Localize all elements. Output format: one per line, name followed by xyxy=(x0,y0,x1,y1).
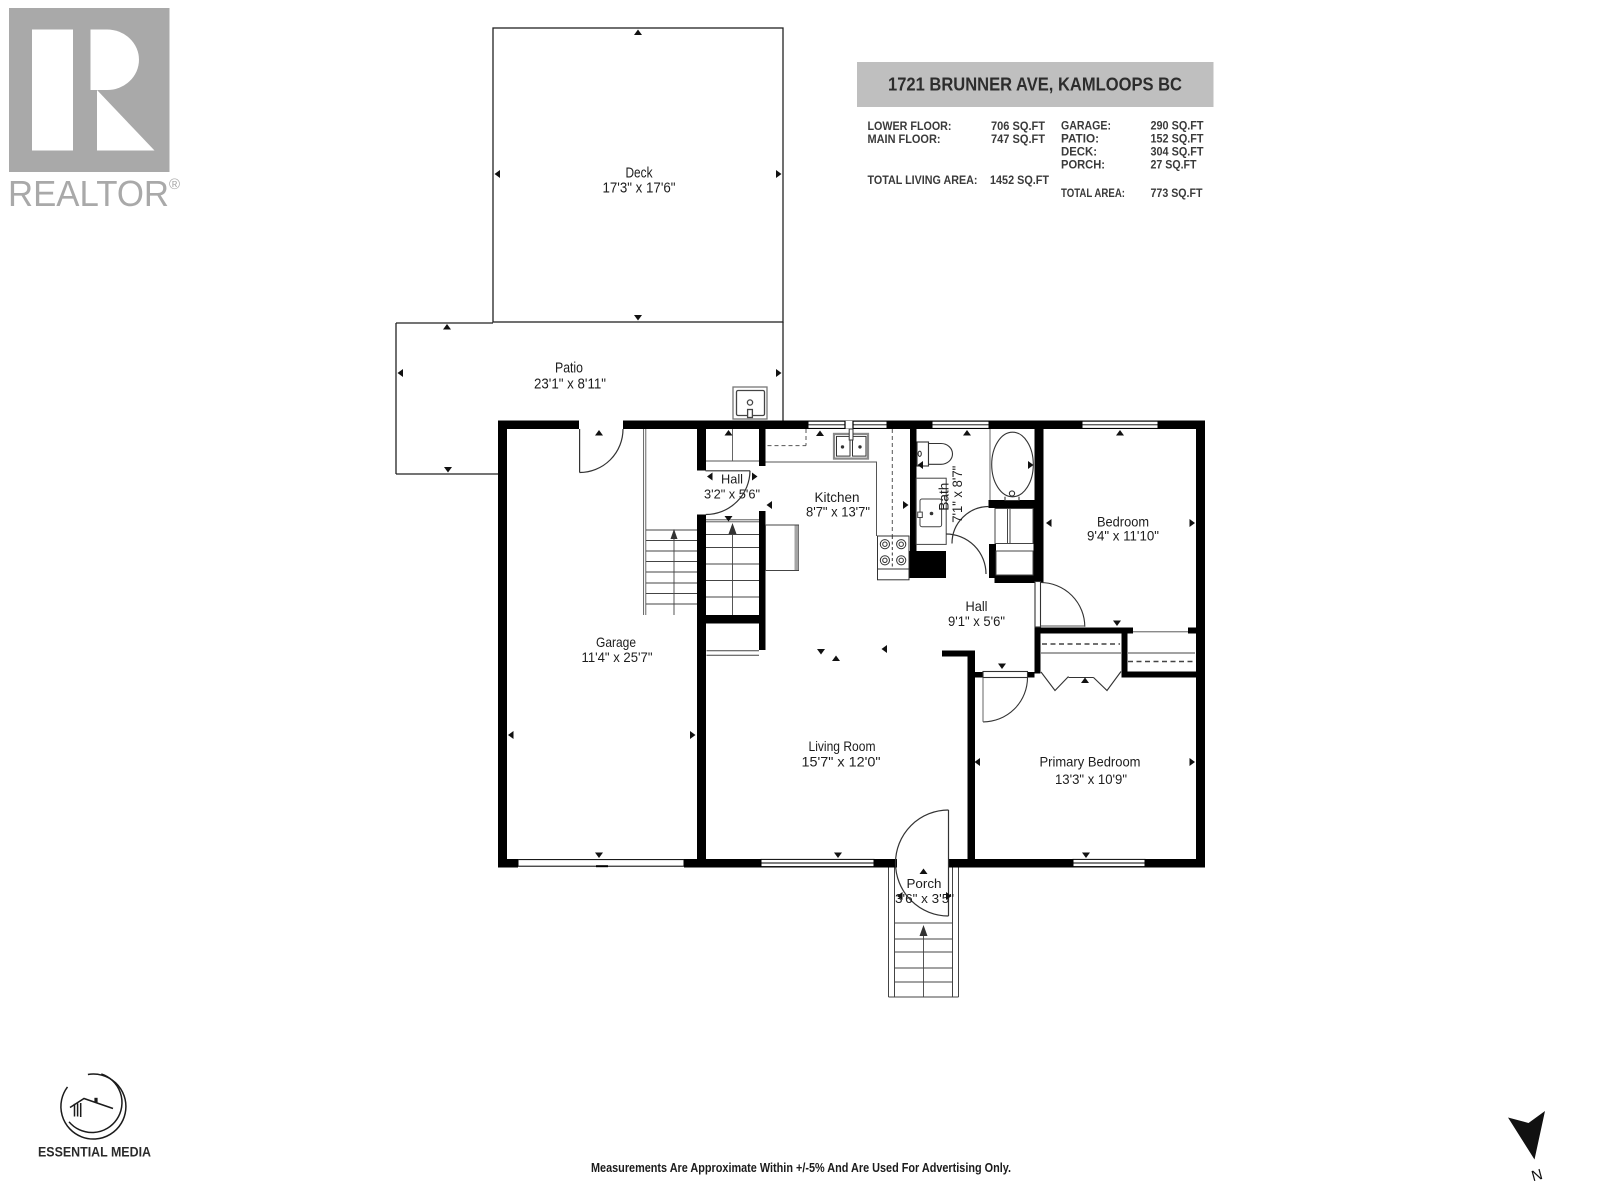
svg-text:17'3" x 17'6": 17'3" x 17'6" xyxy=(603,181,676,197)
svg-text:1452 SQ.FT: 1452 SQ.FT xyxy=(990,174,1049,187)
svg-text:Garage: Garage xyxy=(596,634,636,650)
svg-text:15'7" x 12'0": 15'7" x 12'0" xyxy=(802,754,881,770)
svg-text:747 SQ.FT: 747 SQ.FT xyxy=(991,133,1045,146)
svg-text:Deck: Deck xyxy=(626,166,654,182)
svg-text:3'6" x 3'5": 3'6" x 3'5" xyxy=(895,891,954,906)
svg-text:Hall: Hall xyxy=(721,472,743,487)
svg-text:PATIO:: PATIO: xyxy=(1061,133,1099,146)
svg-text:PORCH:: PORCH: xyxy=(1061,159,1105,172)
svg-text:773 SQ.FT: 773 SQ.FT xyxy=(1151,187,1203,200)
svg-text:TOTAL LIVING AREA:: TOTAL LIVING AREA: xyxy=(868,174,978,187)
svg-text:REALTOR: REALTOR xyxy=(8,173,169,214)
svg-text:304 SQ.FT: 304 SQ.FT xyxy=(1151,146,1204,159)
svg-text:7'1" x 8'7": 7'1" x 8'7" xyxy=(950,466,965,523)
svg-text:Measurements Are Approximate W: Measurements Are Approximate Within +/-5… xyxy=(591,1160,1011,1175)
svg-text:23'1" x 8'11": 23'1" x 8'11" xyxy=(534,377,606,393)
svg-text:27 SQ.FT: 27 SQ.FT xyxy=(1151,159,1197,172)
svg-text:152 SQ.FT: 152 SQ.FT xyxy=(1151,133,1204,146)
svg-text:Porch: Porch xyxy=(907,876,942,891)
svg-text:3'2" x 5'6": 3'2" x 5'6" xyxy=(704,487,760,502)
svg-text:MAIN FLOOR:: MAIN FLOOR: xyxy=(868,133,941,146)
svg-text:9'1" x 5'6": 9'1" x 5'6" xyxy=(948,613,1005,629)
svg-text:9'4" x 11'10": 9'4" x 11'10" xyxy=(1087,528,1159,544)
svg-text:TOTAL AREA:: TOTAL AREA: xyxy=(1061,187,1125,200)
svg-text:13'3" x 10'9": 13'3" x 10'9" xyxy=(1055,771,1127,787)
svg-text:Primary Bedroom: Primary Bedroom xyxy=(1040,754,1141,770)
svg-text:290 SQ.FT: 290 SQ.FT xyxy=(1151,120,1204,133)
svg-text:®: ® xyxy=(169,176,180,193)
svg-text:Living Room: Living Room xyxy=(809,738,876,754)
svg-text:11'4" x 25'7": 11'4" x 25'7" xyxy=(582,649,653,665)
svg-text:LOWER FLOOR:: LOWER FLOOR: xyxy=(868,120,952,133)
svg-text:DECK:: DECK: xyxy=(1061,146,1097,159)
svg-text:Hall: Hall xyxy=(966,598,988,614)
svg-text:GARAGE:: GARAGE: xyxy=(1061,120,1111,133)
svg-text:ESSENTIAL MEDIA: ESSENTIAL MEDIA xyxy=(38,1145,151,1160)
svg-text:Patio: Patio xyxy=(555,361,583,377)
svg-text:706 SQ.FT: 706 SQ.FT xyxy=(991,120,1045,133)
svg-text:1721 BRUNNER AVE, KAMLOOPS BC: 1721 BRUNNER AVE, KAMLOOPS BC xyxy=(888,74,1182,95)
svg-text:8'7" x 13'7": 8'7" x 13'7" xyxy=(806,504,870,520)
